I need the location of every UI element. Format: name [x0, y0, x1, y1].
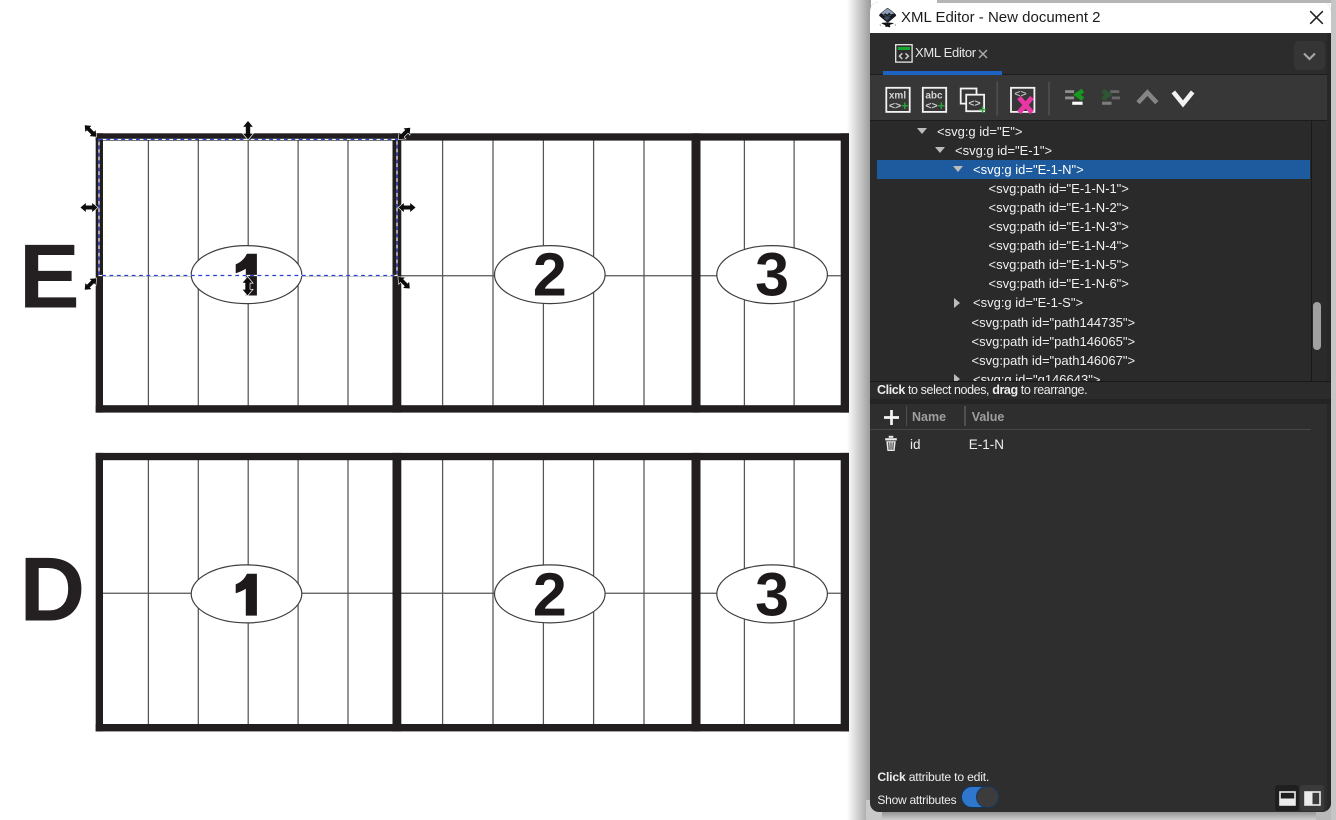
svg-text:3: 3 [755, 241, 789, 309]
svg-text:+: + [938, 98, 946, 113]
svg-text:2: 2 [533, 241, 567, 309]
svg-text:+: + [979, 102, 987, 117]
svg-text:<>: <> [925, 100, 937, 112]
svg-text:<>: <> [889, 100, 901, 112]
svg-text:D: D [20, 540, 86, 641]
svg-text:+: + [901, 98, 909, 113]
svg-text:2: 2 [533, 561, 567, 629]
svg-text:3: 3 [755, 561, 789, 629]
svg-text:E: E [19, 227, 80, 328]
